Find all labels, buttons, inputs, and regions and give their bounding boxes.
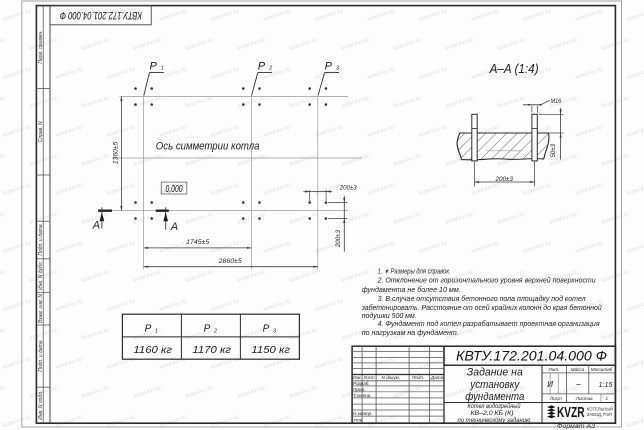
svg-text:N докум.: N докум. <box>382 375 401 380</box>
svg-text:2: 2 <box>213 329 217 335</box>
svg-text:Подп.: Подп. <box>412 375 424 380</box>
svg-text:1: 1 <box>161 65 164 71</box>
svg-text:3. В случае отсутствия бетонно: 3. В случае отсутствия бетонного пола пл… <box>378 294 586 303</box>
svg-text:Лист: Лист <box>363 375 375 380</box>
svg-text:Лист: Лист <box>549 396 562 401</box>
svg-text:КВТУ.172.201.04.000 Ф: КВТУ.172.201.04.000 Ф <box>456 349 607 364</box>
svg-text:M16: M16 <box>551 98 562 105</box>
svg-text:Разраб.: Разраб. <box>353 381 370 386</box>
svg-text:фундамента не более 10 мм.: фундамента не более 10 мм. <box>362 285 461 294</box>
svg-text:KVZR: KVZR <box>557 405 585 421</box>
svg-text:Задание на: Задание на <box>467 366 523 378</box>
svg-text:–: – <box>575 379 581 388</box>
svg-text:1:15: 1:15 <box>599 380 614 389</box>
svg-text:Лит.: Лит. <box>548 367 560 372</box>
svg-text:Т.контр.: Т.контр. <box>353 393 372 398</box>
svg-text:Масса: Масса <box>571 367 585 372</box>
svg-text:Листов: Листов <box>575 396 593 401</box>
svg-text:Ось симметрии котла: Ось симметрии котла <box>156 141 260 153</box>
svg-text:Дата: Дата <box>430 375 444 380</box>
svg-text:1360±5: 1360±5 <box>113 141 120 164</box>
svg-text:2860±5: 2860±5 <box>218 258 242 265</box>
svg-text:200±3: 200±3 <box>495 176 514 183</box>
svg-text:1160 кг: 1160 кг <box>133 345 172 356</box>
svg-text:по нагрузкам на фундамент.: по нагрузкам на фундамент. <box>362 328 459 337</box>
svg-text:4. Фундамент под котел разраба: 4. Фундамент под котел разрабатывает про… <box>378 319 600 328</box>
svg-text:Справ. N: Справ. N <box>38 121 44 142</box>
svg-text:50±3: 50±3 <box>550 144 557 158</box>
svg-text:Взам. инв. N: Взам. инв. N <box>38 294 44 324</box>
svg-text:Пров.: Пров. <box>353 387 365 392</box>
svg-text:P: P <box>145 324 152 335</box>
svg-text:A–A (1:4): A–A (1:4) <box>489 62 539 76</box>
svg-text:1150 кг: 1150 кг <box>251 345 290 356</box>
svg-text:2. Отклонение от горизонтально: 2. Отклонение от горизонтального уровня … <box>377 276 596 285</box>
svg-text:Подп. и дата: Подп. и дата <box>38 340 44 372</box>
svg-text:КВ–2,0 КБ (К): КВ–2,0 КБ (К) <box>471 411 514 417</box>
svg-text:Масштаб: Масштаб <box>591 367 613 372</box>
svg-text:КВТУ.172.201.04.000 Ф: КВТУ.172.201.04.000 Ф <box>60 9 142 21</box>
svg-text:Инв. N подл.: Инв. N подл. <box>38 391 44 420</box>
svg-text:1745±5: 1745±5 <box>186 239 209 246</box>
svg-text:ЗАВОД, РЭП: ЗАВОД, РЭП <box>587 412 612 417</box>
svg-text:установку: установку <box>469 379 520 391</box>
svg-text:Котел водогрейный: Котел водогрейный <box>468 403 522 410</box>
svg-text:A: A <box>92 220 100 232</box>
svg-text:Инв. N дубл.: Инв. N дубл. <box>38 261 44 290</box>
svg-text:фундамента: фундамента <box>465 391 524 403</box>
svg-text:1: 1 <box>155 329 158 335</box>
svg-text:0,000: 0,000 <box>166 184 183 195</box>
svg-text:P: P <box>258 60 266 72</box>
svg-text:P: P <box>150 60 158 72</box>
svg-text:по техническому заданию: по техническому заданию <box>458 418 531 424</box>
svg-text:P: P <box>204 324 211 335</box>
svg-text:КОТЕЛЬНЫЙ: КОТЕЛЬНЫЙ <box>587 407 613 412</box>
svg-text:1170 кг: 1170 кг <box>192 345 231 356</box>
svg-text:И: И <box>547 380 553 389</box>
svg-text:P: P <box>325 60 333 72</box>
svg-text:1: 1 <box>606 396 609 401</box>
svg-text:Подп. и дата: Подп. и дата <box>38 224 44 256</box>
svg-text:Изм.: Изм. <box>353 375 362 380</box>
svg-text:1. ∗ Размеры для справок.: 1. ∗ Размеры для справок. <box>378 267 451 276</box>
svg-text:A: A <box>170 221 178 233</box>
svg-text:200±3: 200±3 <box>339 184 357 191</box>
svg-text:Н.контр.: Н.контр. <box>353 411 372 416</box>
svg-text:P: P <box>263 324 270 335</box>
svg-text:Утв.: Утв. <box>353 417 363 422</box>
svg-text:2: 2 <box>268 65 272 71</box>
svg-text:Перв. примен.: Перв. примен. <box>38 30 44 63</box>
svg-text:Формат А3: Формат А3 <box>557 423 595 430</box>
svg-text:200±3: 200±3 <box>335 230 342 248</box>
